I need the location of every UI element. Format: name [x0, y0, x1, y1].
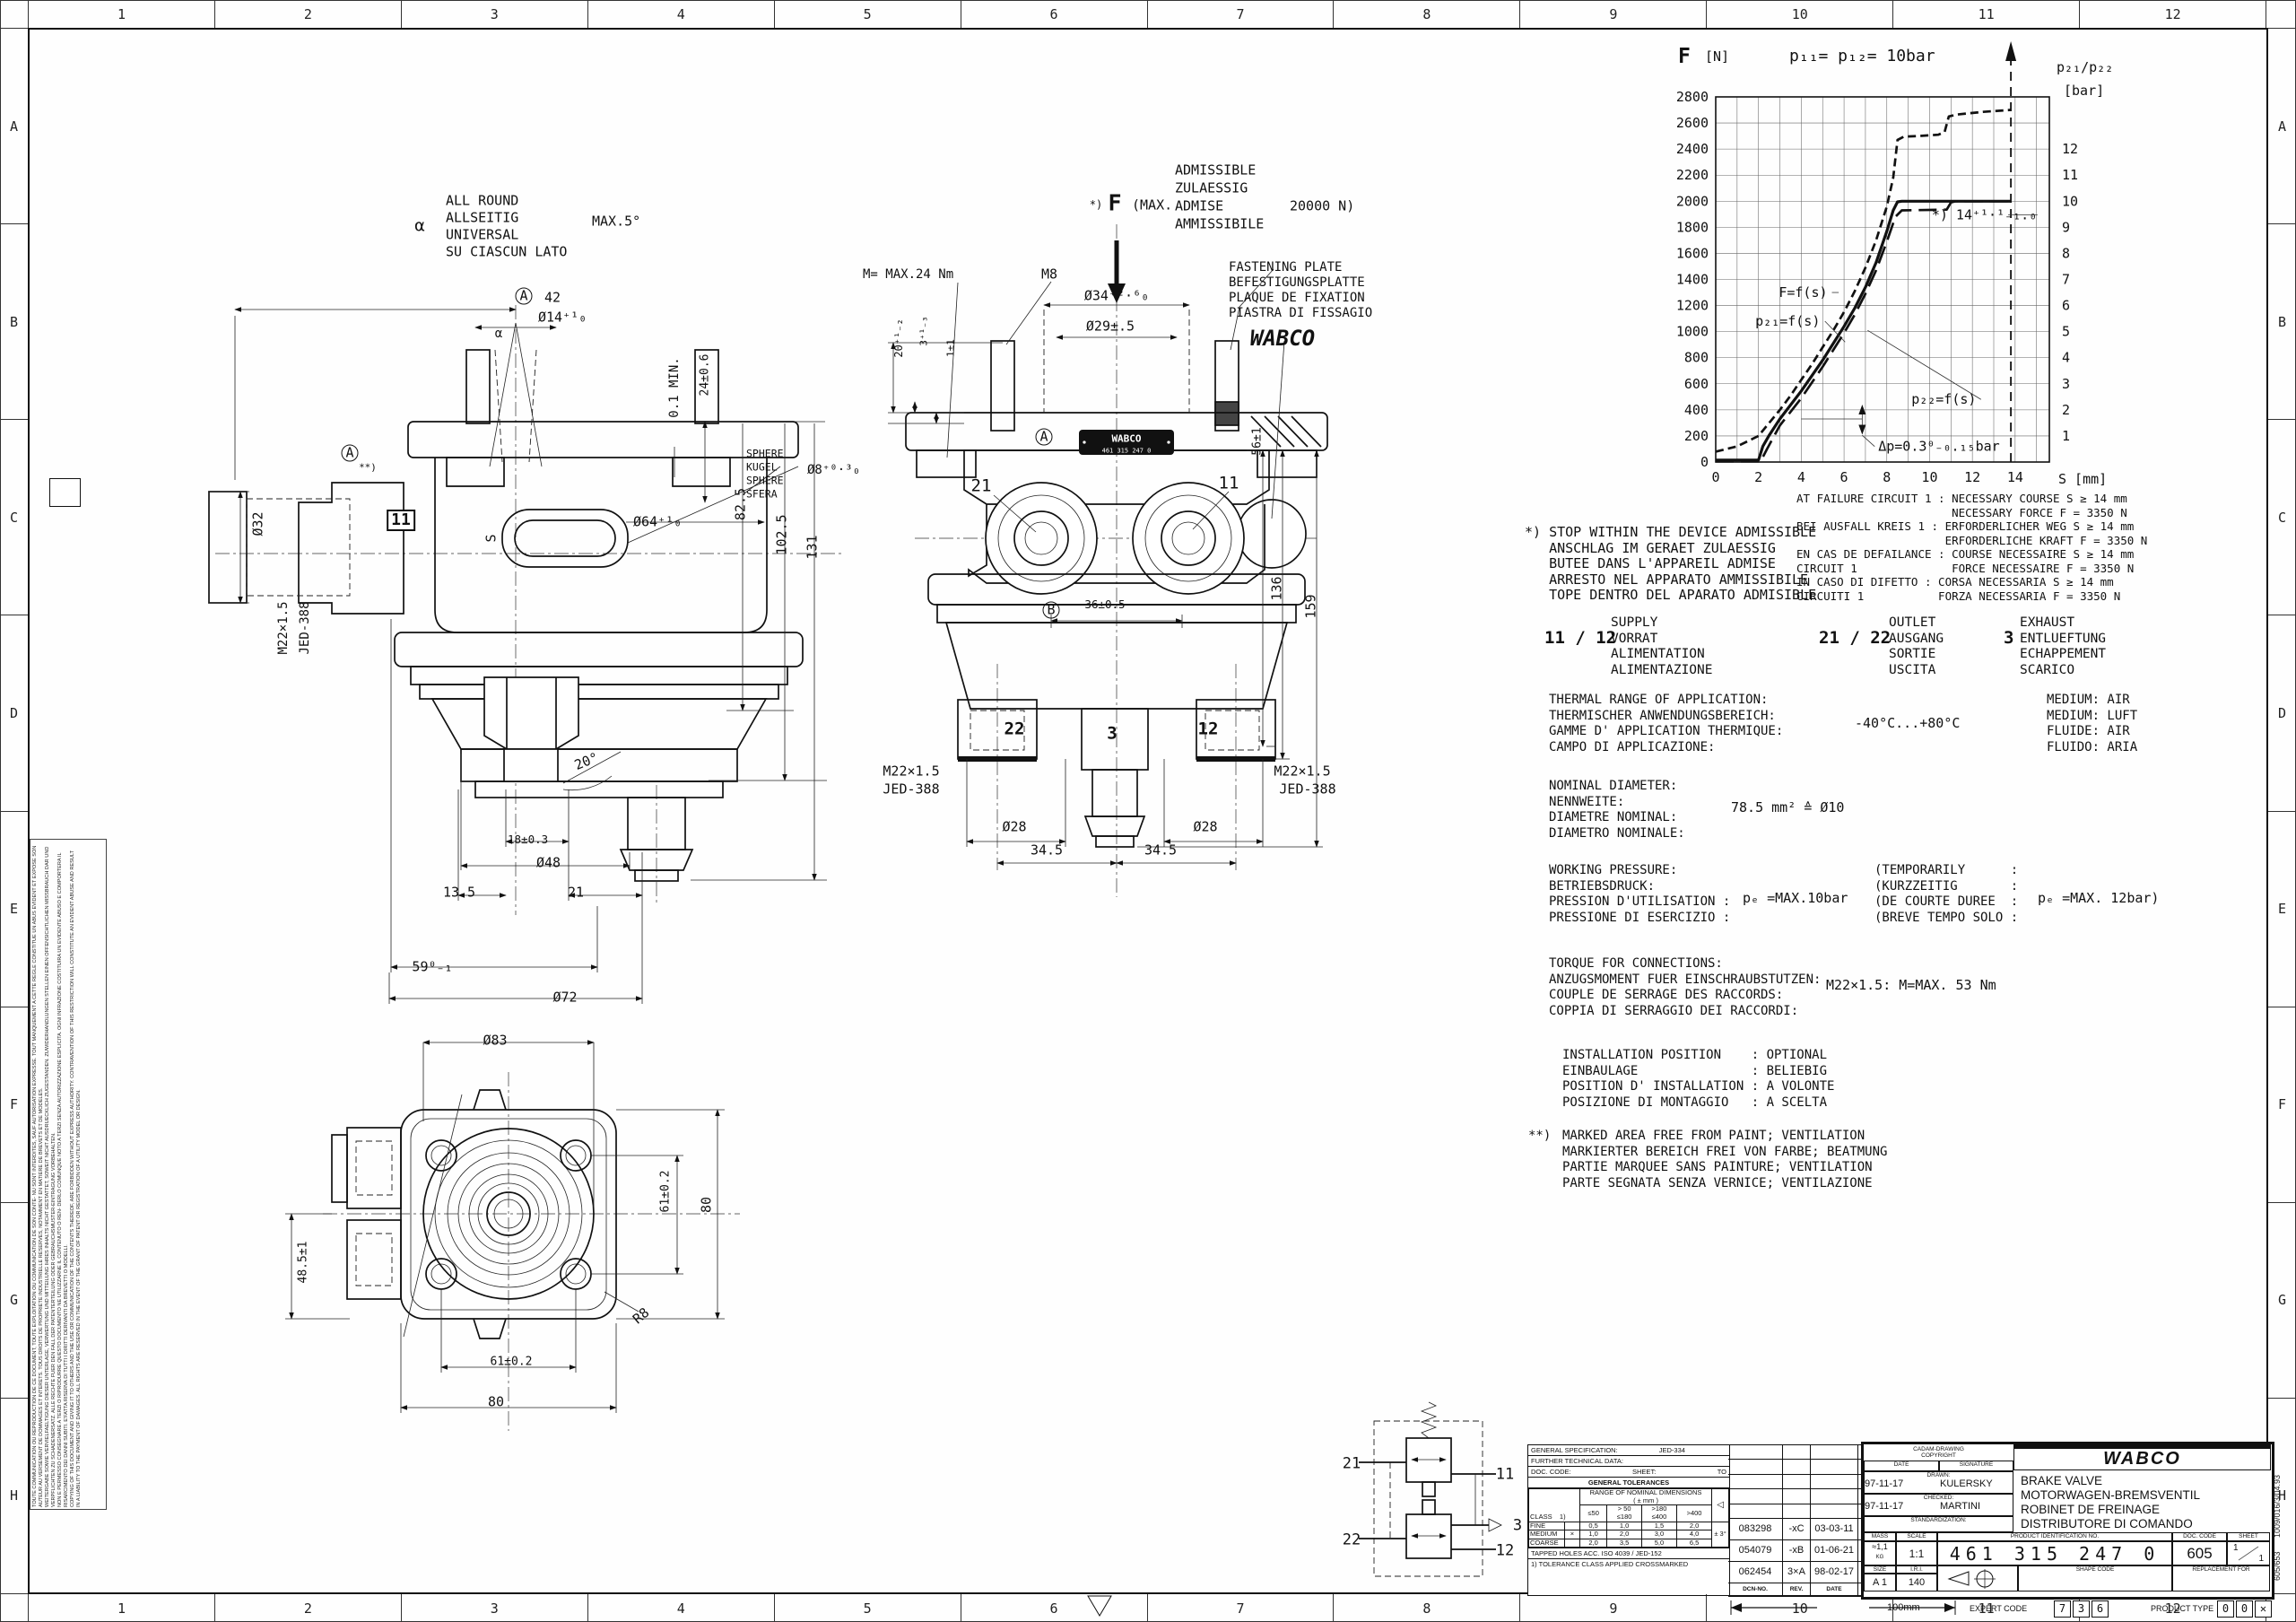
- further-data-label: FURTHER TECHNICAL DATA:: [1531, 1457, 1623, 1465]
- svg-text:10: 10: [2062, 193, 2078, 209]
- dim-label: 11: [387, 510, 415, 531]
- dim-label: 36±0.5: [1084, 599, 1125, 611]
- projection-symbol: [1937, 1565, 2018, 1591]
- expert-code-label: EXPERT CODE: [1970, 1604, 2027, 1613]
- border-row-F: F: [2268, 1007, 2296, 1203]
- title-block-main: CADAM-DRAWINGCOPYRIGHT WABCO DATE SIGNAT…: [1861, 1442, 2274, 1600]
- dim-label: 131: [806, 535, 820, 559]
- text-line: NOMINAL DIAMETER:: [1549, 779, 1685, 795]
- text-line: ANSCHLAG IM GERAET ZULAESSIG: [1525, 541, 1816, 557]
- doc-code-label: DOC. CODE:: [1531, 1468, 1571, 1476]
- border-columns-top: 123456789101112: [28, 0, 2266, 28]
- svg-text:1: 1: [2062, 428, 2070, 444]
- code-digit: 3: [2073, 1600, 2090, 1618]
- text-line: *) STOP WITHIN THE DEVICE ADMISSIBLE: [1525, 525, 1816, 541]
- dim-label: α: [414, 218, 424, 235]
- pneumatic-schematic: [1336, 1400, 1534, 1588]
- dim-label: Ø29±.5: [1086, 320, 1135, 334]
- force-stroke-chart: 0246810121402004006008001000120014001600…: [1655, 32, 2283, 548]
- dim-label: 61±0.2: [660, 1171, 672, 1213]
- mass-value: ≈1,1 KG: [1864, 1541, 1896, 1565]
- pin-header: PRODUCT IDENTIFICATION NO.: [1937, 1532, 2172, 1541]
- text-line: ARRESTO NEL APPARATO AMMISSIBILE: [1525, 572, 1816, 589]
- dim-label: F: [1108, 192, 1121, 214]
- dim-label: 80: [700, 1197, 714, 1213]
- pressure-temp-labels: (TEMPORARILY :(KURZZEITIG :(DE COURTE DU…: [1874, 863, 2018, 926]
- sheet2-header: SHEET: [2227, 1532, 2270, 1541]
- svg-text:[N]: [N]: [1705, 48, 1729, 65]
- border-row-H: H: [0, 1399, 28, 1594]
- svg-text:11: 11: [2062, 167, 2078, 183]
- thermal-value: -40°C...+80°C: [1855, 716, 1960, 732]
- dim-label: 159: [1305, 594, 1318, 618]
- general-spec-value: JED-334: [1659, 1446, 1685, 1454]
- text-line: USCITA: [1889, 663, 1944, 679]
- drawing-sheet: 123456789101112 123456789101112 ABCDEFGH…: [0, 0, 2296, 1622]
- text-line: CAMPO DI APPLICAZIONE:: [1549, 740, 1783, 756]
- pressure-temp-value: pₑ =MAX. 12bar): [2038, 891, 2159, 907]
- dim-label: Ø34⁺²·⁶₀: [1084, 290, 1149, 303]
- center-mark-icon: [1085, 1593, 1114, 1618]
- ports-exhaust-number: 3: [2004, 628, 2013, 648]
- svg-text:8: 8: [1883, 469, 1891, 485]
- to-label: TO: [1718, 1468, 1726, 1476]
- dim-label: 461 315 247 0: [1102, 449, 1152, 455]
- revision-row: [1728, 1445, 1861, 1460]
- text-line: TOUTE COMMUNICATION OU REPRODUCTION DE C…: [32, 845, 45, 1507]
- svg-text:p₂₁=f(s): p₂₁=f(s): [1755, 313, 1820, 329]
- dim-label: *): [1090, 199, 1102, 210]
- dim-label: α: [495, 327, 502, 340]
- text-line: BEI AUSFALL KREIS 1 : ERFORDERLICHER WEG…: [1796, 519, 2147, 534]
- text-line: POSIZIONE DI MONTAGGIO : A SCELTA: [1562, 1095, 1834, 1112]
- dim-label: Ø28: [1193, 821, 1217, 834]
- svg-text:2600: 2600: [1676, 115, 1709, 131]
- text-line: ANZUGSMOMENT FUER EINSCHRAUBSTUTZEN:: [1549, 972, 1821, 989]
- text-line: MEDIUM: LUFT: [2047, 709, 2137, 725]
- text-line: ALIMENTAZIONE: [1611, 663, 1713, 679]
- border-row-B: B: [0, 224, 28, 420]
- text-line: SUPPLY: [1611, 615, 1713, 632]
- svg-text:p₂₁/p₂₂: p₂₁/p₂₂: [2057, 59, 2113, 75]
- dim-label: 102.5: [776, 514, 789, 554]
- tapped-holes-note: TAPPED HOLES ACC. ISO 4039 / JED-152: [1531, 1549, 1662, 1557]
- border-row-E: E: [2268, 812, 2296, 1007]
- dim-label: PLAQUE DE FIXATION: [1229, 292, 1365, 304]
- text-line: PRESSIONE DI ESERCIZIO :: [1549, 911, 1730, 927]
- general-spec-label: GENERAL SPECIFICATION:: [1531, 1446, 1618, 1454]
- size-value: A 1: [1864, 1574, 1896, 1591]
- border-row-D: D: [2268, 615, 2296, 811]
- failure-note: AT FAILURE CIRCUIT 1 : NECESSARY COURSE …: [1796, 492, 2147, 603]
- border-row-E: E: [0, 812, 28, 1007]
- text-line: ENTLUEFTUNG: [2020, 632, 2106, 648]
- svg-text:[bar]: [bar]: [2064, 83, 2104, 99]
- svg-text:1000: 1000: [1676, 324, 1709, 340]
- svg-text:12: 12: [1964, 469, 1980, 485]
- dim-label: 82.5: [735, 488, 748, 520]
- text-line: WORKING PRESSURE:: [1549, 863, 1730, 879]
- dim-label: 18±0.3: [508, 834, 548, 846]
- text-line: ECHAPPEMENT: [2020, 647, 2106, 663]
- dim-label: 42: [544, 292, 561, 305]
- svg-text:Δp=0.3⁰₋₀.₁₅bar: Δp=0.3⁰₋₀.₁₅bar: [1878, 439, 1999, 455]
- svg-text:14: 14: [2007, 469, 2023, 485]
- stop-note: *) STOP WITHIN THE DEVICE ADMISSIBLE ANS…: [1525, 525, 1816, 604]
- product-names: BRAKE VALVEMOTORWAGEN-BREMSVENTILROBINET…: [2021, 1474, 2271, 1531]
- signature-header: SIGNATURE: [1939, 1461, 2013, 1471]
- svg-text:1600: 1600: [1676, 245, 1709, 261]
- border-col-3: 3: [402, 1594, 588, 1622]
- border-col-9: 9: [1520, 1594, 1707, 1622]
- dim-label: WABCO: [1250, 327, 1315, 349]
- text-line: DIAMETRE NOMINAL:: [1549, 810, 1685, 826]
- svg-text:8: 8: [2062, 245, 2070, 261]
- text-line: PRESSION D'UTILISATION :: [1549, 894, 1730, 911]
- dim-label: UNIVERSAL: [446, 229, 518, 242]
- border-row-D: D: [0, 615, 28, 811]
- dim-label: 12: [1198, 721, 1219, 738]
- svg-text:7: 7: [2062, 272, 2070, 288]
- svg-text:4: 4: [1797, 469, 1805, 485]
- dim-label: ALLSEITIG: [446, 212, 518, 225]
- checked-cell: CHECKED: 97-11-17 MARTINI: [1864, 1494, 2013, 1516]
- text-line: PARTE SEGNATA SENZA VERNICE; VENTILAZION…: [1562, 1176, 1887, 1192]
- dim-label: 13.5: [443, 886, 475, 900]
- dim-label: M22×1.5: [883, 765, 939, 779]
- dim-label: FASTENING PLATE: [1229, 261, 1342, 274]
- dim-label: 24±0.6: [700, 354, 711, 397]
- dim-label: M22×1.5: [277, 601, 290, 654]
- pressure-value: pₑ =MAX.10bar: [1743, 891, 1848, 907]
- text-line: VORRAT: [1611, 632, 1713, 648]
- text-line: TORQUE FOR CONNECTIONS:: [1549, 956, 1821, 972]
- scale-bar: [1727, 1597, 1959, 1618]
- text-line: MARKED AREA FREE FROM PAINT; VENTILATION: [1562, 1129, 1887, 1145]
- svg-text:2400: 2400: [1676, 141, 1709, 157]
- svg-text:F: F: [1678, 45, 1691, 68]
- nominal-labels: NOMINAL DIAMETER:NENNWEITE:DIAMETRE NOMI…: [1549, 779, 1685, 842]
- dim-label: Ø8⁺⁰·³₀: [807, 464, 860, 476]
- dim-label: MAX.5°: [592, 215, 640, 229]
- dim-label: Ø72: [552, 991, 577, 1005]
- torque-value: M22×1.5: M=MAX. 53 Nm: [1826, 978, 1996, 994]
- border-col-2: 2: [215, 0, 402, 28]
- dim-label: ADMISE: [1175, 200, 1223, 214]
- revision-row: DCN-NO.REV.DATE: [1728, 1583, 1861, 1597]
- svg-text:400: 400: [1684, 402, 1709, 418]
- dim-label: JED-388: [1279, 783, 1335, 797]
- border-col-10: 10: [1707, 0, 1893, 28]
- dim-label: Ø64⁺¹₀: [633, 516, 682, 529]
- expert-code-boxes: 736: [2052, 1599, 2109, 1618]
- dim-label: 21: [1343, 1457, 1361, 1472]
- legal-notice: TOUTE COMMUNICATION OU REPRODUCTION DE C…: [30, 839, 107, 1510]
- svg-text:2: 2: [1754, 469, 1762, 485]
- border-col-7: 7: [1148, 0, 1335, 28]
- code-digit: 0: [2236, 1600, 2253, 1618]
- dim-label: S: [485, 534, 499, 542]
- tolerance-table: GENERAL SPECIFICATION: JED-334 FURTHER T…: [1527, 1444, 1730, 1596]
- text-line: CIRCUIT 1 FORCE NECESSAIRE F = 3350 N: [1796, 562, 2147, 576]
- ports-exhaust-labels: EXHAUSTENTLUEFTUNGECHAPPEMENTSCARICO: [2020, 615, 2106, 678]
- text-line: GAMME D' APPLICATION THERMIQUE:: [1549, 724, 1783, 740]
- border-row-G: G: [0, 1203, 28, 1399]
- svg-text:0: 0: [1711, 469, 1719, 485]
- size-header: SIZE: [1864, 1565, 1896, 1574]
- text-line: (DE COURTE DUREE :: [1874, 894, 2018, 911]
- svg-text:200: 200: [1684, 428, 1709, 444]
- wabco-logo: WABCO: [2013, 1444, 2271, 1470]
- svg-text:1200: 1200: [1676, 298, 1709, 314]
- tolerance-grid: CLASS 1)RANGE OF NOMINAL DIMENSIONS ( ± …: [1528, 1488, 1729, 1548]
- cadam-label: CADAM-DRAWINGCOPYRIGHT: [1864, 1446, 2013, 1459]
- border-col-8: 8: [1334, 0, 1520, 28]
- text-line: PARTIE MARQUEE SANS PAINTURE; VENTILATIO…: [1562, 1160, 1887, 1176]
- dim-label: 11: [1496, 1468, 1514, 1483]
- text-line: CIRCUITI 1 FORZA NECESSARIA F = 3350 N: [1796, 589, 2147, 604]
- svg-text:3: 3: [2062, 376, 2070, 392]
- dim-label: 59⁰₋₁: [412, 961, 452, 974]
- dim-label: Ø14⁺¹₀: [538, 311, 587, 325]
- text-line: ALIMENTATION: [1611, 647, 1713, 663]
- text-line: BRAKE VALVE: [2021, 1474, 2271, 1488]
- text-line: IN CASO DI DIFETTO : CORSA NECESSARIA S …: [1796, 575, 2147, 589]
- dim-label: 34.5: [1144, 844, 1177, 858]
- text-line: BUTEE DANS L'APPAREIL ADMISE: [1525, 556, 1816, 572]
- general-tolerances-title: GENERAL TOLERANCES: [1588, 1478, 1669, 1487]
- doc-code2-header: DOC. CODE: [2172, 1532, 2227, 1541]
- svg-text:F=f(s): F=f(s): [1779, 284, 1827, 301]
- text-line: EN CAS DE DEFAILANCE : COURSE NECESSAIRE…: [1796, 547, 2147, 562]
- iri-header: I.R.I.: [1896, 1565, 1937, 1574]
- svg-text:2200: 2200: [1676, 167, 1709, 183]
- dim-label: **): [359, 463, 377, 473]
- svg-text:9: 9: [2062, 219, 2070, 235]
- scale-bar-label: 100mm: [1887, 1602, 1920, 1613]
- plan-view-drawing: [206, 1023, 762, 1453]
- scale-value: 1:1: [1896, 1541, 1937, 1565]
- dim-label: 136: [1271, 576, 1284, 600]
- border-col-4: 4: [588, 1594, 775, 1622]
- product-type-label: PRODUCT TYPE: [2151, 1604, 2213, 1613]
- dim-label: Ø32: [252, 511, 265, 536]
- dim-label: 3: [1107, 726, 1117, 743]
- border-row-F: F: [0, 1007, 28, 1203]
- title-block: GENERAL SPECIFICATION: JED-334 FURTHER T…: [1527, 1444, 2269, 1594]
- text-line: OUTLET: [1889, 615, 1944, 632]
- revision-table: 083298-xC03-03-11054079-xB01-06-21062454…: [1728, 1444, 1862, 1596]
- dim-label: 12: [1496, 1544, 1514, 1559]
- doc-code2-value: 605: [2172, 1541, 2227, 1565]
- border-col-9: 9: [1520, 0, 1707, 28]
- dim-label: SPHERE: [746, 475, 784, 486]
- svg-text:S [mm]: S [mm]: [2058, 471, 2107, 487]
- text-line: TOPE DENTRO DEL APARATO ADMISIBLE: [1525, 588, 1816, 604]
- svg-text:6: 6: [2062, 298, 2070, 314]
- dim-label: 22: [1004, 721, 1025, 738]
- dim-label: ALL ROUND: [446, 195, 518, 208]
- text-line: (KURZZEITIG :: [1874, 879, 2018, 895]
- border-col-7: 7: [1148, 1594, 1335, 1622]
- text-line: ERFORDERLICHE KRAFT F = 3350 N: [1796, 534, 2147, 548]
- border-col-1: 1: [28, 0, 215, 28]
- dim-label: Ø48: [536, 857, 561, 870]
- border-col-6: 6: [961, 1594, 1148, 1622]
- text-line: AT FAILURE CIRCUIT 1 : NECESSARY COURSE …: [1796, 492, 2147, 506]
- text-line: NON E PERMESSO CONSEGNARE A TERZI O RIPR…: [57, 845, 70, 1507]
- svg-text:6: 6: [1840, 469, 1848, 485]
- pressure-labels: WORKING PRESSURE:BETRIEBSDRUCK:PRESSION …: [1549, 863, 1730, 926]
- svg-text:4: 4: [2062, 350, 2070, 366]
- text-line: THERMISCHER ANWENDUNGSBEREICH:: [1549, 709, 1783, 725]
- svg-text:2000: 2000: [1676, 193, 1709, 209]
- text-line: DIAMETRO NOMINALE:: [1549, 826, 1685, 842]
- text-line: MARKIERTER BEREICH FREI VON FARBE; BEATM…: [1562, 1145, 1887, 1161]
- svg-text:1800: 1800: [1676, 219, 1709, 235]
- drawn-cell: DRAWN: 97-11-17 KULERSKY: [1864, 1471, 2013, 1494]
- ports-supply-labels: SUPPLYVORRATALIMENTATIONALIMENTAZIONE: [1611, 615, 1713, 678]
- dim-label: AMMISSIBILE: [1175, 218, 1264, 231]
- fold-mark: [49, 478, 81, 507]
- side-view-drawing: [206, 287, 906, 1032]
- border-col-6: 6: [961, 0, 1148, 28]
- border-rows-left: ABCDEFGH: [0, 28, 28, 1594]
- revision-row: [1728, 1504, 1861, 1519]
- svg-text:5: 5: [2062, 324, 2070, 340]
- border-col-2: 2: [215, 1594, 402, 1622]
- dim-label: M= MAX.24 Nm: [863, 268, 953, 281]
- dim-label: ZULAESSIG: [1175, 182, 1248, 196]
- svg-text:10: 10: [1921, 469, 1937, 485]
- dim-label: BEFESTIGUNGSPLATTE: [1229, 276, 1365, 289]
- revision-row: 054079-xB01-06-21: [1728, 1540, 1861, 1562]
- shape-code-cell: SHAPE CODE: [2018, 1565, 2172, 1591]
- dim-label: WABCO: [1111, 434, 1141, 444]
- dim-label: SPHERE: [746, 449, 784, 459]
- dim-label: 1±1: [946, 339, 956, 357]
- text-line: SCARICO: [2020, 663, 2106, 679]
- code-digit: 0: [2217, 1600, 2234, 1618]
- dim-label: JED-388: [883, 783, 939, 797]
- dim-label: ADMISSIBLE: [1175, 164, 1256, 178]
- svg-text:2: 2: [2062, 402, 2070, 418]
- torque-labels: TORQUE FOR CONNECTIONS:ANZUGSMOMENT FUER…: [1549, 956, 1821, 1019]
- text-line: COPPIA DI SERRAGGIO DEI RACCORDI:: [1549, 1004, 1821, 1020]
- product-identification-number: 461 315 247 0: [1937, 1541, 2172, 1565]
- sheet-label: SHEET:: [1632, 1468, 1656, 1476]
- dim-label: M8: [1041, 268, 1057, 282]
- replacement-cell: REPLACEMENT FOR: [2172, 1565, 2270, 1591]
- code-digit: 7: [2054, 1600, 2071, 1618]
- tolerance-footnote: 1) TOLERANCE CLASS APPLIED CROSSMARKED: [1531, 1560, 1688, 1568]
- border-col-5: 5: [775, 0, 961, 28]
- standardization-cell: STANDARDIZATION:: [1864, 1516, 2013, 1532]
- dim-label: 61±0.2: [491, 1356, 533, 1368]
- dim-label: 3: [1513, 1519, 1522, 1534]
- text-line: COUPLE DE SERRAGE DES RACCORDS:: [1549, 988, 1821, 1004]
- dim-label: JED-388: [299, 601, 311, 654]
- ports-outlet-number: 21 / 22: [1819, 628, 1891, 648]
- dim-label: 20⁺¹₋₂: [893, 318, 904, 357]
- svg-text:600: 600: [1684, 376, 1709, 392]
- text-line: (TEMPORARILY :: [1874, 863, 2018, 879]
- border-row-G: G: [2268, 1203, 2296, 1399]
- border-col-4: 4: [588, 0, 775, 28]
- dim-label: 48.5±1: [298, 1242, 309, 1284]
- text-line: EXHAUST: [2020, 615, 2106, 632]
- dim-label: 20000 N): [1290, 200, 1354, 214]
- svg-text:p₂₂=f(s): p₂₂=f(s): [1911, 391, 1976, 407]
- dim-label: (MAX.: [1132, 199, 1172, 213]
- medium-labels: MEDIUM: AIRMEDIUM: LUFTFLUIDE: AIRFLUIDO…: [2047, 693, 2137, 755]
- svg-text:0: 0: [1700, 454, 1709, 470]
- border-col-5: 5: [775, 1594, 961, 1622]
- text-line: FLUIDE: AIR: [2047, 724, 2137, 740]
- product-type-boxes: 00✕: [2215, 1599, 2272, 1618]
- iri-value: 140: [1896, 1574, 1937, 1591]
- dim-label: KUGEL: [746, 462, 778, 473]
- svg-text:2800: 2800: [1676, 89, 1709, 105]
- dim-label: 56±1: [1252, 427, 1264, 455]
- text-line: EINBAULAGE : BELIEBIG: [1562, 1064, 1834, 1080]
- dim-label: A: [342, 445, 359, 462]
- ports-supply-number: 11 / 12: [1544, 628, 1616, 648]
- border-col-3: 3: [402, 0, 588, 28]
- dim-label: B: [1043, 602, 1060, 619]
- dim-label: SFERA: [746, 489, 778, 500]
- scale-header: SCALE: [1896, 1532, 1937, 1541]
- text-line: ROBINET DE FREINAGE: [2021, 1503, 2271, 1517]
- text-line: AUSGANG: [1889, 632, 1944, 648]
- dim-label: A: [516, 288, 533, 305]
- dim-label: A: [1036, 429, 1053, 446]
- revision-row: [1728, 1460, 1861, 1474]
- sheet2-value: 1 1: [2227, 1541, 2270, 1565]
- marked-area-note: MARKED AREA FREE FROM PAINT; VENTILATION…: [1562, 1129, 1887, 1191]
- revision-row: 0624543×A98-02-17: [1728, 1562, 1861, 1583]
- text-line: (BREVE TEMPO SOLO :: [1874, 911, 2018, 927]
- code-digit: ✕: [2255, 1600, 2272, 1618]
- nominal-value: 78.5 mm² ≙ Ø10: [1731, 800, 1844, 816]
- dim-label: 0.1 MIN.: [668, 357, 681, 417]
- text-line: MOTORWAGEN-BREMSVENTIL: [2021, 1488, 2271, 1503]
- text-line: NECESSARY FORCE F = 3350 N: [1796, 506, 2147, 520]
- text-line: FLUIDO: ARIA: [2047, 740, 2137, 756]
- revision-row: [1728, 1475, 1861, 1489]
- dim-label: 21: [971, 478, 992, 495]
- installation-note: INSTALLATION POSITION : OPTIONALEINBAULA…: [1562, 1048, 1834, 1111]
- border-col-12: 12: [2080, 0, 2266, 28]
- dim-label: 21: [568, 886, 584, 900]
- text-line: MEDIUM: AIR: [2047, 693, 2137, 709]
- border-row-C: C: [0, 420, 28, 615]
- svg-text:p₁₁= p₁₂= 10bar: p₁₁= p₁₂= 10bar: [1789, 47, 1935, 65]
- ports-outlet-labels: OUTLETAUSGANGSORTIEUSCITA: [1889, 615, 1944, 678]
- dim-label: 80: [488, 1396, 504, 1409]
- text-line: POSITION D' INSTALLATION : A VOLONTE: [1562, 1079, 1834, 1095]
- date-header: DATE: [1864, 1461, 1939, 1471]
- thermal-labels: THERMAL RANGE OF APPLICATION:THERMISCHER…: [1549, 693, 1783, 755]
- text-line: COPYING OF THIS DOCUMENT AND GIVING IT T…: [70, 845, 83, 1507]
- svg-text:800: 800: [1684, 350, 1709, 366]
- text-line: BETRIEBSDRUCK:: [1549, 879, 1730, 895]
- dim-label: Ø28: [1002, 821, 1026, 834]
- border-row-A: A: [0, 28, 28, 224]
- code-digit: 6: [2092, 1600, 2109, 1618]
- mass-header: MASS: [1864, 1532, 1896, 1541]
- dim-label: 3⁺¹₋₃: [919, 316, 929, 345]
